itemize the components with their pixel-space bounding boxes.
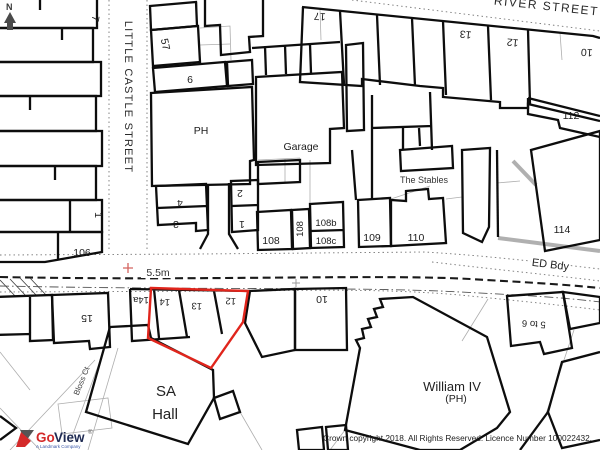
- map-canvas[interactable]: N RIVER STREET LITTLE CASTLE STREET 7 57…: [0, 0, 600, 450]
- boundary-mark-cross: [292, 279, 300, 287]
- label-plot-13-south: 13: [191, 300, 202, 312]
- building-outline: [0, 96, 96, 131]
- building-outline: [151, 26, 200, 66]
- building-outline: [345, 297, 510, 450]
- north-arrow: N: [4, 2, 16, 30]
- label-plot-108: 108: [262, 235, 280, 247]
- label-plot-10-north: 10: [580, 46, 593, 59]
- goview-logo-text-view: View: [54, 430, 85, 445]
- building-outline: [520, 412, 548, 450]
- label-height-marker: 5.5m: [146, 267, 170, 279]
- label-plot-106: 106: [73, 247, 91, 259]
- label-plot-57: 57: [158, 37, 172, 51]
- label-plot-7: 7: [89, 15, 102, 23]
- building-outline: [400, 128, 453, 171]
- building-outline: [52, 293, 110, 349]
- label-plot-108b: 108b: [315, 218, 336, 229]
- building-outline: [352, 150, 372, 200]
- label-plot-ph: PH: [194, 125, 209, 137]
- label-the-stables: The Stables: [400, 175, 449, 185]
- goview-logo-tagline: A Landmark Company: [36, 444, 81, 449]
- label-plot-3: 3: [173, 218, 179, 230]
- label-william-iv-ph: (PH): [445, 393, 467, 405]
- building-outline: [0, 28, 93, 62]
- label-sa-hall-line1: SA: [156, 383, 176, 400]
- label-plot-6: 6: [187, 74, 193, 86]
- label-plot-108c: 108c: [316, 236, 337, 247]
- label-plot-12-south: 12: [225, 295, 236, 307]
- label-plot-14: 14: [159, 296, 170, 308]
- building-outline: [86, 325, 214, 444]
- label-plot-12-north: 12: [506, 35, 519, 48]
- building-outline: [0, 131, 102, 166]
- label-plot-112: 112: [563, 110, 580, 122]
- label-plot-15: 15: [81, 312, 93, 324]
- building-outline: [227, 60, 253, 86]
- building-outline: [252, 42, 340, 75]
- goview-logo-registered: ®: [88, 429, 93, 436]
- copyright-notice: Crown copyright 2018. All Rights Reserve…: [323, 433, 592, 443]
- building-outline: [462, 148, 490, 242]
- label-street-little-castle: LITTLE CASTLE STREET: [122, 21, 134, 173]
- label-sa-hall-line2: Hall: [152, 406, 178, 423]
- goview-logo[interactable]: Go View ® A Landmark Company: [16, 429, 93, 449]
- building-outline: [0, 416, 16, 440]
- label-height-marker-group: 5.5m: [141, 266, 175, 279]
- label-plot-1-west: 1: [92, 212, 104, 218]
- building-outline: [214, 391, 240, 419]
- road-hatching: [0, 278, 46, 297]
- label-garage: Garage: [283, 141, 318, 153]
- building-outline: [0, 200, 102, 232]
- boundary-line: [58, 398, 112, 434]
- building-outline: [0, 0, 97, 28]
- label-street-river: RIVER STREET: [493, 0, 599, 18]
- label-plot-10-south: 10: [316, 293, 328, 305]
- map-viewport: N RIVER STREET LITTLE CASTLE STREET 7 57…: [0, 0, 600, 450]
- building-outline: [245, 289, 295, 357]
- boundary-line: [320, 9, 562, 60]
- bench-mark-cross: [123, 263, 133, 273]
- label-plot-110: 110: [408, 232, 425, 244]
- label-william-iv: William IV: [423, 379, 481, 394]
- label-plot-2: 2: [237, 187, 243, 199]
- building-outline: [0, 166, 96, 200]
- boundary-line: [240, 412, 345, 450]
- goview-logo-text-go: Go: [36, 430, 55, 445]
- building-outline: [563, 292, 600, 329]
- building-outline: [30, 0, 70, 232]
- retaining-walls: [498, 161, 600, 251]
- label-plot-108a: 108: [295, 221, 306, 237]
- label-plot-114: 114: [554, 224, 571, 236]
- building-outline: [340, 11, 530, 104]
- label-plot-4: 4: [177, 197, 183, 209]
- label-plot-14a: 14a: [132, 294, 149, 305]
- building-outline: [497, 150, 498, 237]
- label-plot-13-north: 13: [459, 27, 472, 40]
- label-ed-bdy: ED Bdy: [531, 257, 570, 274]
- building-outline: [0, 295, 53, 341]
- boundary-line: [462, 299, 574, 414]
- north-arrow-label: N: [6, 2, 13, 12]
- label-ed-bdy-group: ED Bdy: [530, 256, 571, 274]
- building-outline: [0, 62, 101, 96]
- label-plot-1-mid: 1: [239, 218, 245, 230]
- label-plot-5to6: 5 to 6: [522, 317, 546, 330]
- label-plot-109: 109: [363, 232, 381, 244]
- map-labels: RIVER STREET LITTLE CASTLE STREET 7 57 6…: [72, 0, 600, 423]
- label-plot-17: 17: [313, 10, 326, 23]
